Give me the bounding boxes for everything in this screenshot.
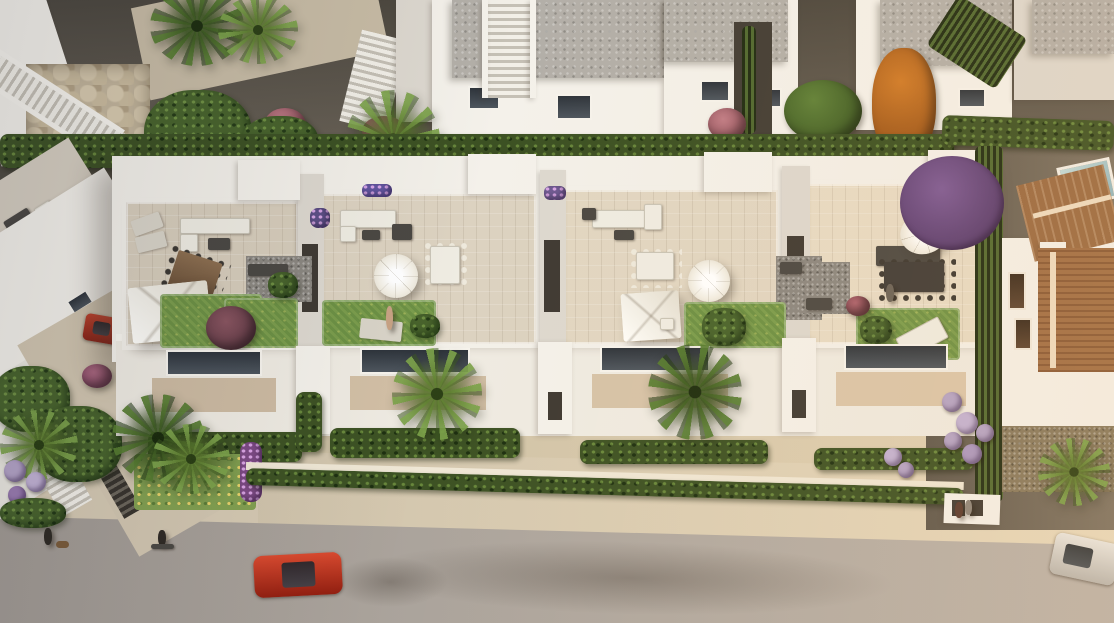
terrace3-side-table [582, 208, 596, 220]
villa-window-2 [1014, 318, 1032, 350]
front-hedge-3 [580, 440, 768, 464]
terrace1-red-tree [206, 306, 256, 350]
bicycle [151, 544, 174, 549]
top-stair-rail-left [482, 0, 488, 98]
lavender-ball-2 [956, 412, 978, 434]
front-palm-2 [152, 424, 230, 494]
ac-unit-2 [806, 298, 832, 310]
lavender-ball-5 [976, 424, 994, 442]
facade-glazing-4 [844, 344, 948, 370]
terrace2-dining-table [430, 246, 460, 284]
stair-bulkhead-1 [238, 160, 300, 200]
parked-red-car-glass [92, 321, 111, 337]
terrace3-coffee-table [614, 230, 634, 240]
left-pink-bush [82, 364, 112, 388]
terrace3-umbrella [688, 260, 730, 302]
plaza-veg [0, 498, 66, 528]
terrace2-coffee-table [362, 230, 380, 240]
purple-tree [900, 156, 1004, 250]
plaza-lavender-1 [4, 460, 26, 482]
red-car-glass [281, 561, 315, 588]
front-palm-3 [392, 348, 482, 440]
entry-stair-2 [538, 342, 572, 434]
terrace1-coffee-table [208, 238, 230, 250]
terrace2-shrub [410, 314, 440, 338]
planter-purple-1 [310, 208, 330, 228]
lavender-ball-4 [962, 444, 982, 464]
top-central-staircase [488, 0, 530, 98]
terrace4-green-shrub [860, 316, 892, 344]
terrace2-umbrella [374, 254, 418, 298]
terrace3-chair [660, 318, 674, 330]
stair-bulkhead-2 [468, 154, 536, 194]
top-stair-rail-right [530, 0, 536, 98]
terrace4-red-shrub [846, 296, 870, 316]
villa-window-1 [1008, 272, 1026, 310]
dog [56, 541, 69, 548]
entry-door-2 [548, 392, 562, 420]
terrace3-dining-table [636, 252, 674, 280]
lavender-ball-3 [944, 432, 962, 450]
top-building-b-window-2 [556, 94, 592, 120]
villa-ridge-2 [1050, 252, 1056, 368]
pedestrian-couple-2 [965, 500, 972, 515]
stair-shaft-2-slot [544, 240, 560, 312]
entry-door-3 [792, 390, 806, 418]
terrace2-sofa-side [340, 226, 356, 242]
green-tree-top [784, 80, 862, 142]
terrace3-shrub [702, 308, 746, 346]
facade-glazing-1 [166, 350, 262, 376]
villa-palm-low [1038, 438, 1110, 506]
terrace1-planter-green [268, 272, 298, 298]
top-building-e-roof [1032, 0, 1114, 54]
pedestrian-couple-1 [955, 502, 963, 518]
lavender-ball-1 [942, 392, 962, 412]
pedestrian-dog-walker [44, 528, 52, 545]
terrace2-armchair [392, 224, 412, 240]
top-building-c-window-1 [700, 80, 730, 102]
terrace4-person [886, 284, 894, 302]
front-palm-4 [648, 344, 742, 440]
front-hedge-vertical [296, 392, 322, 452]
stair-bulkhead-3 [704, 152, 772, 192]
terrace3-sofa-side [644, 204, 662, 230]
terrace3-shade-sail [620, 290, 681, 342]
terrace1-sofa [180, 218, 250, 234]
terrace2-loungers [359, 318, 403, 342]
lavender-ball-6 [884, 448, 902, 466]
planter-purple-2 [362, 184, 392, 197]
separator-hedge-right [942, 115, 1114, 151]
top-building-d-window-2 [958, 88, 986, 108]
aerial-development-render [0, 0, 1114, 623]
lavender-ball-7 [898, 462, 914, 478]
plaza-lavender-2 [26, 472, 46, 492]
red-car-shadow [330, 556, 450, 608]
terrace2-person [386, 306, 393, 330]
ac-unit-1 [780, 262, 802, 274]
planter-purple-3 [544, 186, 566, 200]
